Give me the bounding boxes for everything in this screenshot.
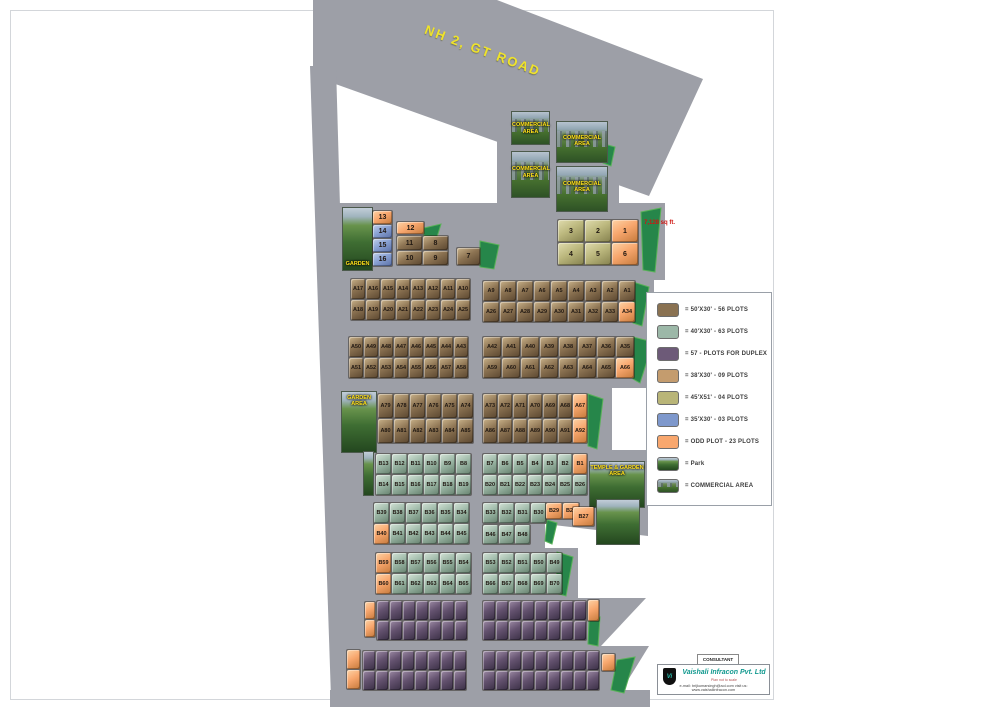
legend-swatch — [657, 325, 679, 339]
odd-plot-cell — [561, 651, 573, 670]
commercial-area-photo-1: COMMERCIAL AREA — [511, 111, 550, 145]
odd-plot-cell — [548, 671, 560, 690]
odd-plot-cell — [496, 621, 508, 640]
legend-label: = 35'X30' - 03 PLOTS — [685, 417, 748, 423]
odd-plot-cell — [574, 671, 586, 690]
plot-B49: B49 — [547, 553, 562, 573]
plot-B59: B59 — [376, 553, 391, 573]
plot-A7: A7 — [517, 281, 533, 301]
plot-A24: A24 — [441, 300, 455, 320]
plot-B24: B24 — [543, 475, 557, 495]
row3-right: A73A72A71A70A69A68A67A86A87A88A89A90A91A… — [482, 393, 588, 444]
legend-item: = ODD PLOT - 23 PLOTS — [657, 431, 771, 453]
odd-plot-cell — [522, 601, 534, 620]
plot-B30: B30 — [531, 503, 546, 523]
odd-plot-cell — [483, 621, 495, 640]
plot-B1: B1 — [573, 454, 587, 474]
commercial-area-photo-2: COMMERCIAL AREA — [556, 121, 608, 163]
plot-A80: A80 — [378, 419, 393, 443]
odd-plot-cell — [365, 602, 375, 619]
odd-row7-right — [587, 599, 600, 622]
legend-panel: = 50'X30' - 56 PLOTS= 40'X30' - 63 PLOTS… — [646, 292, 772, 506]
plot-B3: B3 — [543, 454, 557, 474]
commercial-area-label: COMMERCIAL AREA — [557, 181, 607, 194]
plot-B19: B19 — [456, 475, 471, 495]
row2-left: A50A49A48A47A46A45A44A43A51A52A53A54A55A… — [348, 336, 469, 379]
plot-B65: B65 — [456, 574, 471, 594]
odd-plot-cell — [483, 671, 495, 690]
plot-A13: A13 — [411, 279, 425, 299]
plot-A63: A63 — [559, 358, 577, 378]
plot-A12: A12 — [426, 279, 440, 299]
row5-left: B39B38B37B36B35B34B40B41B42B43B44B45 — [373, 502, 470, 545]
plot-B58: B58 — [392, 553, 407, 573]
duplex-row7-right — [482, 600, 587, 641]
garden-photo-mid — [596, 499, 640, 545]
plot-7: 7 — [457, 248, 480, 265]
commercial-area-label: COMMERCIAL AREA — [512, 166, 549, 179]
duplex-row8-left — [362, 650, 467, 691]
plot-B52: B52 — [499, 553, 514, 573]
plot-A62: A62 — [540, 358, 558, 378]
plot-A46: A46 — [409, 337, 423, 357]
plot-A17: A17 — [351, 279, 365, 299]
consultant-box: Vi Vaishali Infracon Pvt. Ltd Plan not t… — [657, 664, 770, 695]
odd-plot-cell — [416, 621, 428, 640]
plot-B46: B46 — [483, 525, 498, 544]
plot-A40: A40 — [521, 337, 539, 357]
legend-label: = COMMERCIAL AREA — [685, 483, 753, 489]
odd-plot-cell — [587, 651, 599, 670]
plot-13: 13 — [373, 211, 392, 224]
plot-A82: A82 — [410, 419, 425, 443]
plot-B16: B16 — [408, 475, 423, 495]
row4-left: B13B12B11B10B9B8B14B15B16B17B18B19 — [375, 453, 472, 496]
plot-16: 16 — [373, 253, 392, 266]
odd-plot-cell — [429, 621, 441, 640]
plot-B29: B29 — [546, 503, 562, 519]
legend-swatch — [657, 457, 679, 471]
plot-B62: B62 — [408, 574, 423, 594]
odd-plot-cell — [403, 601, 415, 620]
plot-A29: A29 — [534, 302, 550, 322]
plot-A65: A65 — [597, 358, 615, 378]
plot-A87: A87 — [498, 419, 512, 443]
plot-A67: A67 — [573, 394, 587, 418]
plot-B41: B41 — [390, 524, 405, 544]
garden-area-photo: GARDEN AREA — [341, 391, 377, 453]
plot-B47: B47 — [499, 525, 514, 544]
plot-B61: B61 — [392, 574, 407, 594]
row4-right: B7B6B5B4B3B2B1B20B21B22B23B24B25B26 — [482, 453, 588, 496]
company-logo: Vi — [663, 668, 676, 685]
odd-plot-cell — [347, 670, 360, 689]
legend-item: = COMMERCIAL AREA — [657, 475, 771, 497]
temple-garden-label: TEMPLE & GARDEN AREA — [590, 465, 644, 478]
odd-plot-cell — [402, 671, 414, 690]
plot-A49: A49 — [364, 337, 378, 357]
plot-B56: B56 — [424, 553, 439, 573]
odd-b27: B27 — [572, 506, 595, 527]
odd-plot-cell — [522, 651, 534, 670]
row1-right: A9A8A7A6A5A4A3A2A1A26A27A28A29A30A31A32A… — [482, 280, 636, 323]
plot-B69: B69 — [531, 574, 546, 594]
plot-A88: A88 — [513, 419, 527, 443]
plot-B53: B53 — [483, 553, 498, 573]
plot-5: 5 — [585, 243, 611, 265]
odd-plot-cell — [509, 671, 521, 690]
garden-strip-photo — [363, 451, 374, 496]
odd-plot-cell — [416, 601, 428, 620]
row6-right: B53B52B51B50B49B66B67B68B69B70 — [482, 552, 563, 595]
legend-item: = 38'X30' - 09 PLOTS — [657, 365, 771, 387]
commercial-area-label: COMMERCIAL AREA — [512, 122, 549, 135]
plot-B70: B70 — [547, 574, 562, 594]
plot-B7: B7 — [483, 454, 497, 474]
garden-area-label: GARDEN AREA — [342, 395, 376, 408]
plot-A37: A37 — [578, 337, 596, 357]
odd-plot-cell — [377, 621, 389, 640]
plot-A30: A30 — [551, 302, 567, 322]
plot-A6: A6 — [534, 281, 550, 301]
odd-plot-cell — [535, 621, 547, 640]
plot-B2: B2 — [558, 454, 572, 474]
odd-row8-right — [601, 653, 616, 672]
plot-B6: B6 — [498, 454, 512, 474]
odd-plot-cell — [483, 651, 495, 670]
legend-label: = Park — [685, 461, 704, 467]
plot-A91: A91 — [558, 419, 572, 443]
plot-B48: B48 — [515, 525, 530, 544]
plot-A25: A25 — [456, 300, 470, 320]
duplex-row8-right — [482, 650, 600, 691]
odd-row7-left — [364, 601, 376, 638]
plot-B33: B33 — [483, 503, 498, 523]
plot-A35: A35 — [616, 337, 634, 357]
plot-B39: B39 — [374, 503, 389, 523]
plot-A74: A74 — [458, 394, 473, 418]
plot-A21: A21 — [396, 300, 410, 320]
odd-plot-cell — [602, 654, 615, 671]
plot-B4: B4 — [528, 454, 542, 474]
legend-swatch — [657, 435, 679, 449]
legend-swatch — [657, 347, 679, 361]
legend-label: = 38'X30' - 09 PLOTS — [685, 373, 748, 379]
plot-A18: A18 — [351, 300, 365, 320]
odd-plot-cell — [587, 671, 599, 690]
odd-plot-cell — [535, 671, 547, 690]
plot-B54: B54 — [456, 553, 471, 573]
plot-B23: B23 — [528, 475, 542, 495]
plot-15: 15 — [373, 239, 392, 252]
plot-A51: A51 — [349, 358, 363, 378]
plot-B63: B63 — [424, 574, 439, 594]
plot-B9: B9 — [440, 454, 455, 474]
legend-swatch — [657, 479, 679, 493]
plot-A45: A45 — [424, 337, 438, 357]
odd-plot-cell — [454, 651, 466, 670]
odd-plot-cell — [548, 651, 560, 670]
plot-A27: A27 — [500, 302, 516, 322]
plot-A90: A90 — [543, 419, 557, 443]
plot-A89: A89 — [528, 419, 542, 443]
plot-A28: A28 — [517, 302, 533, 322]
odd-plot-cell — [390, 601, 402, 620]
row5-right-top: B33B32B31B30 — [482, 502, 547, 524]
plot-A14: A14 — [396, 279, 410, 299]
top-blue-column: 13141516 — [372, 210, 393, 267]
plot-A3: A3 — [585, 281, 601, 301]
odd-plot-cell — [376, 651, 388, 670]
plot-A34: A34 — [619, 302, 635, 322]
legend-label: = 40'X30' - 63 PLOTS — [685, 329, 748, 335]
plot-A84: A84 — [442, 419, 457, 443]
plot-B67: B67 — [499, 574, 514, 594]
area-note: 7,128 sq ft. — [644, 220, 675, 226]
legend-label: = 57 - PLOTS FOR DUPLEX — [685, 351, 767, 357]
legend-label: = 50'X30' - 56 PLOTS — [685, 307, 748, 313]
plot-2: 2 — [585, 220, 611, 242]
odd-plot-cell — [574, 601, 586, 620]
plot-A26: A26 — [483, 302, 499, 322]
plot-6: 6 — [612, 243, 638, 265]
odd-plot-cell — [402, 651, 414, 670]
plot-8: 8 — [423, 236, 448, 250]
plot-A23: A23 — [426, 300, 440, 320]
plot-B34: B34 — [454, 503, 469, 523]
plot-B32: B32 — [499, 503, 514, 523]
legend-item: = 50'X30' - 56 PLOTS — [657, 299, 771, 321]
plot-B5: B5 — [513, 454, 527, 474]
plot-A86: A86 — [483, 419, 497, 443]
plot-B8: B8 — [456, 454, 471, 474]
plot-B36: B36 — [422, 503, 437, 523]
plot-B20: B20 — [483, 475, 497, 495]
legend-label: = ODD PLOT - 23 PLOTS — [685, 439, 759, 445]
plot-B43: B43 — [422, 524, 437, 544]
plot-A2: A2 — [602, 281, 618, 301]
plot-A64: A64 — [578, 358, 596, 378]
odd-row8-left — [346, 649, 361, 690]
odd-plot-cell — [365, 620, 375, 637]
plot-B15: B15 — [392, 475, 407, 495]
odd-plot-cell — [415, 651, 427, 670]
plot-B13: B13 — [376, 454, 391, 474]
plot-A41: A41 — [502, 337, 520, 357]
odd-plot-cell — [548, 621, 560, 640]
plot-A9: A9 — [483, 281, 499, 301]
odd-plot-cell — [415, 671, 427, 690]
row1-left: A17A16A15A14A13A12A11A10A18A19A20A21A22A… — [350, 278, 471, 321]
plot-B44: B44 — [438, 524, 453, 544]
plot-A57: A57 — [439, 358, 453, 378]
plot-A72: A72 — [498, 394, 512, 418]
odd-plot-cell — [390, 621, 402, 640]
plot-A70: A70 — [528, 394, 542, 418]
plot-A77: A77 — [410, 394, 425, 418]
odd-plot-cell — [535, 601, 547, 620]
plot-A68: A68 — [558, 394, 572, 418]
plot-A20: A20 — [381, 300, 395, 320]
odd-plot-cell — [377, 601, 389, 620]
plot-A85: A85 — [458, 419, 473, 443]
plot-B31: B31 — [515, 503, 530, 523]
odd-plot-cell — [522, 671, 534, 690]
plot-A71: A71 — [513, 394, 527, 418]
plot-B64: B64 — [440, 574, 455, 594]
legend-item: = 35'X30' - 03 PLOTS — [657, 409, 771, 431]
plot-A22: A22 — [411, 300, 425, 320]
plot-B18: B18 — [440, 475, 455, 495]
plot-A92: A92 — [573, 419, 587, 443]
odd-plot-cell — [496, 601, 508, 620]
plot-A66: A66 — [616, 358, 634, 378]
plot-B45: B45 — [454, 524, 469, 544]
row2-right: A42A41A40A39A38A37A36A35A59A60A61A62A63A… — [482, 336, 635, 379]
plot-1: 1 — [612, 220, 638, 242]
legend-label: = 45'X51' - 04 PLOTS — [685, 395, 748, 401]
odd-plot-cell — [455, 601, 467, 620]
odd-plot-cell — [403, 621, 415, 640]
odd-plot-cell — [509, 601, 521, 620]
company-contact: e-mail: brijkumarsingh@aol.com visit us:… — [658, 684, 769, 692]
row3-left: A79A78A77A76A75A74A80A81A82A83A84A85 — [377, 393, 474, 444]
plot-14: 14 — [373, 225, 392, 238]
odd-plot-cell — [363, 651, 375, 670]
odd-plot-cell — [574, 651, 586, 670]
odd-plot-cell — [389, 651, 401, 670]
row5-right-bottom: B46B47B48 — [482, 524, 531, 545]
plot-A59: A59 — [483, 358, 501, 378]
plot-B26: B26 — [573, 475, 587, 495]
plot-11: 11 — [397, 236, 422, 250]
plot-A32: A32 — [585, 302, 601, 322]
legend-swatch — [657, 369, 679, 383]
odd-plot-cell — [509, 651, 521, 670]
company-tagline: Plan not to scale — [680, 678, 768, 682]
commercial-area-label: COMMERCIAL AREA — [557, 135, 607, 148]
plot-A55: A55 — [409, 358, 423, 378]
plot-A79: A79 — [378, 394, 393, 418]
plot-A69: A69 — [543, 394, 557, 418]
plot-A33: A33 — [602, 302, 618, 322]
plot-A39: A39 — [540, 337, 558, 357]
plot-B42: B42 — [406, 524, 421, 544]
plot-B68: B68 — [515, 574, 530, 594]
odd-plot-cell — [548, 601, 560, 620]
legend-item: = 45'X51' - 04 PLOTS — [657, 387, 771, 409]
plot-A53: A53 — [379, 358, 393, 378]
duplex-row7-left — [376, 600, 468, 641]
top-plot-12: 12 — [396, 221, 425, 235]
odd-plot-cell — [496, 671, 508, 690]
plot-A31: A31 — [568, 302, 584, 322]
legend-items: = 50'X30' - 56 PLOTS= 40'X30' - 63 PLOTS… — [657, 299, 771, 497]
odd-plot-cell — [376, 671, 388, 690]
odd-plot-cell — [509, 621, 521, 640]
plot-B38: B38 — [390, 503, 405, 523]
plot-B12: B12 — [392, 454, 407, 474]
plot-A44: A44 — [439, 337, 453, 357]
plot-B40: B40 — [374, 524, 389, 544]
plot-B35: B35 — [438, 503, 453, 523]
plot-A38: A38 — [559, 337, 577, 357]
plot-B55: B55 — [440, 553, 455, 573]
plot-A1: A1 — [619, 281, 635, 301]
plot-B50: B50 — [531, 553, 546, 573]
legend-swatch — [657, 413, 679, 427]
odd-plot-cell — [428, 651, 440, 670]
plot-A42: A42 — [483, 337, 501, 357]
legend-item: = Park — [657, 453, 771, 475]
plot-A19: A19 — [366, 300, 380, 320]
plot-B22: B22 — [513, 475, 527, 495]
plot-A11: A11 — [441, 279, 455, 299]
odd-plot-cell — [442, 601, 454, 620]
plot-A43: A43 — [454, 337, 468, 357]
row6-left: B59B58B57B56B55B54B60B61B62B63B64B65 — [375, 552, 472, 595]
plot-A8: A8 — [500, 281, 516, 301]
plot-3: 3 — [558, 220, 584, 242]
odd-plot-cell — [561, 671, 573, 690]
plot-10: 10 — [397, 251, 422, 265]
legend-swatch — [657, 391, 679, 405]
plot-A50: A50 — [349, 337, 363, 357]
plot-B51: B51 — [515, 553, 530, 573]
odd-plot-cell — [535, 651, 547, 670]
plot-B57: B57 — [408, 553, 423, 573]
odd-plot-cell — [561, 601, 573, 620]
odd-plot-cell — [522, 621, 534, 640]
odd-plot-cell — [441, 671, 453, 690]
odd-plot-cell — [428, 671, 440, 690]
plot-12: 12 — [397, 222, 424, 234]
plot-A78: A78 — [394, 394, 409, 418]
odd-plot-cell — [561, 621, 573, 640]
plot-A75: A75 — [442, 394, 457, 418]
plot-B25: B25 — [558, 475, 572, 495]
top-brown-block: 118109 — [396, 235, 449, 266]
plot-9: 9 — [423, 251, 448, 265]
plot-A10: A10 — [456, 279, 470, 299]
plot-B37: B37 — [406, 503, 421, 523]
top-olive-block: 321456 — [557, 219, 639, 266]
odd-plot-cell — [588, 600, 599, 621]
plot-A60: A60 — [502, 358, 520, 378]
odd-plot-cell — [483, 601, 495, 620]
plot-A48: A48 — [379, 337, 393, 357]
legend-item: = 57 - PLOTS FOR DUPLEX — [657, 343, 771, 365]
plot-A16: A16 — [366, 279, 380, 299]
plot-B66: B66 — [483, 574, 498, 594]
plot-4: 4 — [558, 243, 584, 265]
odd-plot-cell — [574, 621, 586, 640]
plot-B21: B21 — [498, 475, 512, 495]
plot-A83: A83 — [426, 419, 441, 443]
odd-plot-cell — [454, 671, 466, 690]
odd-plot-cell — [347, 650, 360, 669]
company-name: Vaishali Infracon Pvt. Ltd — [680, 669, 768, 676]
plot-A73: A73 — [483, 394, 497, 418]
site-plan-page: NH 2, GT ROAD GARDEN GARDEN AREA TEMPLE … — [0, 0, 1000, 707]
plot-A76: A76 — [426, 394, 441, 418]
plot-A47: A47 — [394, 337, 408, 357]
plot-B11: B11 — [408, 454, 423, 474]
odd-plot-cell — [363, 671, 375, 690]
plot-B17: B17 — [424, 475, 439, 495]
odd-plot-cell — [441, 651, 453, 670]
plot-A15: A15 — [381, 279, 395, 299]
